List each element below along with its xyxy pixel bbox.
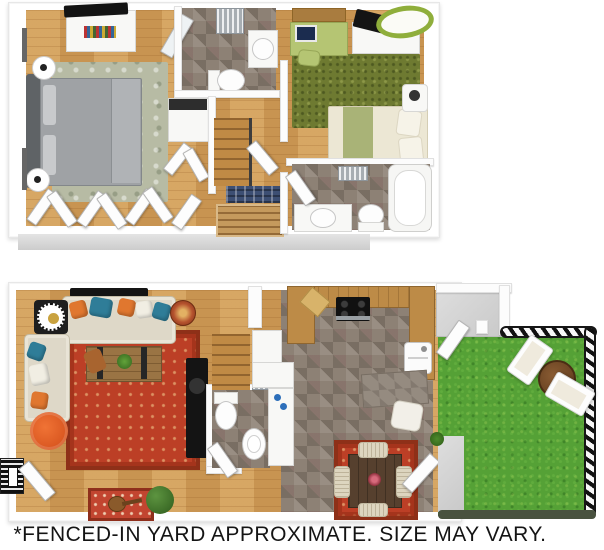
fridge-knob xyxy=(274,394,281,401)
doormat-label xyxy=(8,467,18,487)
staircase-upper xyxy=(214,118,250,186)
table-plant xyxy=(117,354,132,369)
window xyxy=(22,148,27,190)
interior-wall xyxy=(280,60,288,142)
master-bed-pillow xyxy=(43,85,56,125)
hall-runner-rug xyxy=(226,186,280,203)
table-centerpiece xyxy=(368,473,381,486)
floor-plan-image: *FENCED-IN YARD APPROXIMATE. SIZE MAY VA… xyxy=(0,0,604,550)
pedestal-sink-basin xyxy=(247,435,261,453)
walkway xyxy=(438,436,464,512)
media-console xyxy=(186,358,208,458)
ottoman xyxy=(30,412,68,450)
dining-chair xyxy=(358,442,388,458)
kitchen-sink xyxy=(404,342,432,374)
island-stool xyxy=(390,400,424,433)
fence-bottom-rail xyxy=(438,510,596,519)
throw-pillow-orange xyxy=(116,297,136,317)
fridge-knob xyxy=(280,403,287,410)
desk-chair xyxy=(297,49,321,67)
hamper xyxy=(402,84,428,112)
stairwell-opening xyxy=(216,204,284,237)
wall-vent xyxy=(338,166,368,181)
second-floor-slab-edge xyxy=(18,234,370,250)
fence-right xyxy=(584,326,596,518)
laptop xyxy=(295,25,317,42)
master-bed-duvet-fold xyxy=(111,79,140,183)
washer-dryer xyxy=(168,98,210,142)
stove-front-trim xyxy=(336,316,370,320)
fence-top xyxy=(500,326,597,338)
ceiling-vent xyxy=(216,8,244,34)
bush xyxy=(430,432,444,446)
bedroom-2-windowsill xyxy=(292,8,346,22)
round-side-table xyxy=(170,300,196,326)
master-bed-pillow xyxy=(43,135,56,175)
disclaimer-caption: *FENCED-IN YARD APPROXIMATE. SIZE MAY VA… xyxy=(0,523,560,547)
throw-pillow-teal xyxy=(89,296,114,319)
gold-bowl xyxy=(48,313,59,324)
master-bed xyxy=(40,78,142,186)
dining-chair xyxy=(334,466,350,498)
throw-pillow-white xyxy=(28,362,51,386)
bathroom-sink xyxy=(252,38,274,60)
bathtub-basin xyxy=(394,170,426,226)
toilet xyxy=(217,69,245,92)
refrigerator xyxy=(268,388,294,466)
interior-wall xyxy=(280,172,288,234)
counter-nook xyxy=(252,362,294,388)
entry-doormat xyxy=(0,458,24,494)
powder-toilet xyxy=(215,401,237,430)
turntable xyxy=(189,378,205,394)
bathroom-2-sink xyxy=(310,208,336,228)
staircase-lower xyxy=(212,334,250,390)
dining-chair xyxy=(358,503,388,517)
bathtub xyxy=(388,164,432,232)
patio-door-post xyxy=(476,320,488,334)
toilet-2-tank xyxy=(358,222,384,232)
stove-cooktop xyxy=(336,297,370,321)
faucet xyxy=(421,346,427,352)
dresser-books xyxy=(84,26,116,38)
throw-pillow-orange xyxy=(30,391,49,410)
stair-column xyxy=(248,286,262,328)
bed-blanket xyxy=(343,107,373,165)
nightstand-lamp-shade xyxy=(34,176,41,183)
sink-divider xyxy=(408,357,428,359)
interior-wall xyxy=(174,6,182,96)
bed-pillow xyxy=(395,108,422,137)
interior-wall xyxy=(174,90,280,98)
nightstand-lamp-shade xyxy=(40,64,47,71)
table-strap xyxy=(141,347,147,379)
washer-control-panel xyxy=(169,99,207,110)
window xyxy=(22,28,27,62)
potted-plant xyxy=(146,486,174,514)
hamper-lid xyxy=(409,90,420,101)
